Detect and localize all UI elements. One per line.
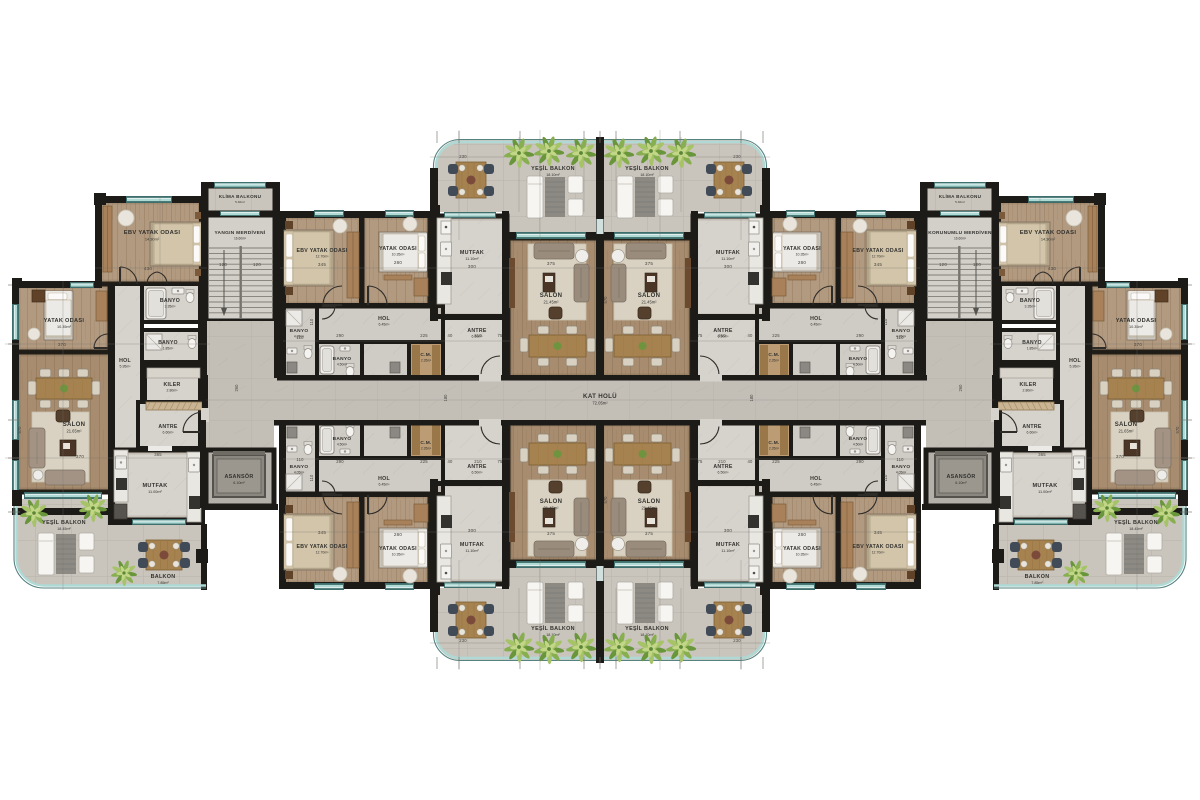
svg-text:YANGIN MERDİVENİ: YANGIN MERDİVENİ <box>215 229 266 236</box>
svg-text:570: 570 <box>1175 426 1180 434</box>
svg-text:21.65m²: 21.65m² <box>1118 429 1134 434</box>
svg-text:16.60m²: 16.60m² <box>954 236 967 240</box>
svg-text:BANYO: BANYO <box>1022 340 1042 346</box>
svg-text:BANYO: BANYO <box>1020 298 1040 304</box>
svg-text:14.30m²: 14.30m² <box>145 236 160 241</box>
svg-text:6.60m²: 6.60m² <box>1027 431 1039 435</box>
svg-text:180: 180 <box>749 394 754 402</box>
svg-text:MUTFAK: MUTFAK <box>716 250 740 256</box>
svg-text:110: 110 <box>309 474 314 481</box>
svg-text:C.M.: C.M. <box>420 440 431 446</box>
svg-text:EBV YATAK ODASI: EBV YATAK ODASI <box>1020 230 1077 236</box>
svg-text:YATAK ODASI: YATAK ODASI <box>1116 318 1157 324</box>
svg-text:110: 110 <box>896 457 904 462</box>
svg-text:2.35m²: 2.35m² <box>421 446 432 450</box>
svg-text:280: 280 <box>394 260 403 265</box>
svg-text:570: 570 <box>603 496 608 504</box>
svg-text:ANTRE: ANTRE <box>158 424 178 430</box>
svg-text:YATAK ODASI: YATAK ODASI <box>783 246 821 252</box>
svg-text:10.35m²: 10.35m² <box>796 553 810 557</box>
svg-text:7.85m²: 7.85m² <box>157 581 169 585</box>
svg-text:10.35m²: 10.35m² <box>796 253 810 257</box>
svg-text:120: 120 <box>939 262 947 267</box>
svg-text:BANYO: BANYO <box>333 356 352 362</box>
svg-text:KLİMA BALKONU: KLİMA BALKONU <box>939 193 982 199</box>
svg-text:225: 225 <box>420 459 428 464</box>
svg-text:4.50m²: 4.50m² <box>853 442 864 446</box>
svg-text:3.35m²: 3.35m² <box>1025 305 1037 309</box>
svg-text:21.45m²: 21.45m² <box>543 300 559 305</box>
svg-text:290: 290 <box>856 459 864 464</box>
svg-text:7.85m²: 7.85m² <box>1031 581 1043 585</box>
svg-text:210: 210 <box>474 333 482 338</box>
svg-text:21.65m²: 21.65m² <box>66 429 82 434</box>
svg-text:18.45m²: 18.45m² <box>1129 527 1143 531</box>
svg-text:18.10m²: 18.10m² <box>546 173 560 177</box>
svg-text:110: 110 <box>309 318 314 325</box>
svg-text:YATAK ODASI: YATAK ODASI <box>379 546 417 552</box>
svg-text:365: 365 <box>154 452 162 457</box>
svg-text:BANYO: BANYO <box>849 356 868 362</box>
svg-text:110: 110 <box>883 474 888 481</box>
svg-text:290: 290 <box>856 333 864 338</box>
svg-text:2.80m²: 2.80m² <box>167 389 179 393</box>
svg-text:4.05m²: 4.05m² <box>294 470 305 474</box>
svg-text:570: 570 <box>17 426 22 434</box>
svg-text:375: 375 <box>547 261 556 266</box>
svg-text:280: 280 <box>394 532 403 537</box>
svg-text:225: 225 <box>420 333 428 338</box>
svg-text:2.35m²: 2.35m² <box>421 358 432 362</box>
svg-text:40: 40 <box>447 333 453 338</box>
svg-text:YATAK ODASI: YATAK ODASI <box>379 246 417 252</box>
svg-text:SALON: SALON <box>638 293 661 299</box>
svg-text:4.05m²: 4.05m² <box>896 470 907 474</box>
svg-text:HOL: HOL <box>378 476 390 482</box>
svg-text:21.45m²: 21.45m² <box>641 300 657 305</box>
svg-text:KAT HOLÜ: KAT HOLÜ <box>583 393 617 400</box>
svg-text:EBV YATAK ODASI: EBV YATAK ODASI <box>296 544 347 550</box>
svg-text:5.40m²: 5.40m² <box>955 200 965 204</box>
svg-text:75: 75 <box>697 333 703 338</box>
svg-text:345: 345 <box>874 262 883 267</box>
svg-text:YEŞİL BALKON: YEŞİL BALKON <box>42 519 86 526</box>
svg-text:225: 225 <box>772 459 780 464</box>
svg-text:MUTFAK: MUTFAK <box>1032 483 1057 489</box>
svg-text:110: 110 <box>296 457 304 462</box>
svg-text:HOL: HOL <box>810 316 822 322</box>
svg-text:12.70m²: 12.70m² <box>316 255 330 259</box>
svg-text:210: 210 <box>718 333 726 338</box>
svg-text:14.30m²: 14.30m² <box>1041 236 1056 241</box>
svg-text:BANYO: BANYO <box>892 464 911 470</box>
svg-text:SALON: SALON <box>540 499 563 505</box>
svg-text:260: 260 <box>958 384 963 392</box>
svg-text:6.45m²: 6.45m² <box>379 323 391 327</box>
svg-text:210: 210 <box>474 459 482 464</box>
svg-text:EBV YATAK ODASI: EBV YATAK ODASI <box>852 248 903 254</box>
svg-text:ANTRE: ANTRE <box>1022 424 1042 430</box>
svg-text:KORUNUMLU MERDİVEN: KORUNUMLU MERDİVEN <box>928 229 992 236</box>
svg-text:345: 345 <box>318 530 327 535</box>
svg-text:12.70m²: 12.70m² <box>872 255 886 259</box>
svg-text:21.45m²: 21.45m² <box>543 506 559 511</box>
svg-text:430: 430 <box>144 266 153 271</box>
svg-text:6.45m²: 6.45m² <box>379 483 391 487</box>
svg-text:21.45m²: 21.45m² <box>641 506 657 511</box>
svg-text:570: 570 <box>603 296 608 304</box>
svg-text:10.35m²: 10.35m² <box>57 325 72 329</box>
svg-text:10.35m²: 10.35m² <box>1129 325 1144 329</box>
svg-text:SALON: SALON <box>63 422 86 428</box>
svg-text:5.40m²: 5.40m² <box>235 200 245 204</box>
svg-text:260: 260 <box>234 384 239 392</box>
svg-text:YEŞİL BALKON: YEŞİL BALKON <box>625 165 669 172</box>
svg-text:345: 345 <box>318 262 327 267</box>
svg-text:6.50m²: 6.50m² <box>472 471 484 475</box>
svg-text:YATAK ODASI: YATAK ODASI <box>44 318 85 324</box>
svg-text:370: 370 <box>1134 342 1143 347</box>
svg-text:C.M.: C.M. <box>768 352 779 358</box>
svg-text:4.50m²: 4.50m² <box>337 442 348 446</box>
svg-text:MUTFAK: MUTFAK <box>716 542 740 548</box>
svg-text:BALKON: BALKON <box>1025 574 1050 580</box>
svg-text:11.00m²: 11.00m² <box>148 490 162 494</box>
svg-text:180: 180 <box>443 394 448 402</box>
svg-text:MUTFAK: MUTFAK <box>142 483 167 489</box>
svg-text:ANTRE: ANTRE <box>713 464 733 470</box>
svg-text:230: 230 <box>459 638 467 643</box>
svg-text:225: 225 <box>772 333 780 338</box>
svg-text:16.60m²: 16.60m² <box>234 236 247 240</box>
svg-text:345: 345 <box>874 530 883 535</box>
svg-text:6.45m²: 6.45m² <box>811 323 823 327</box>
svg-text:40: 40 <box>747 459 753 464</box>
svg-text:SALON: SALON <box>638 499 661 505</box>
svg-text:11.10m²: 11.10m² <box>721 549 735 553</box>
svg-text:YEŞİL BALKON: YEŞİL BALKON <box>625 625 669 632</box>
svg-text:BANYO: BANYO <box>290 464 309 470</box>
svg-text:ASANSÖR: ASANSÖR <box>224 473 253 480</box>
svg-text:18.45m²: 18.45m² <box>57 527 71 531</box>
svg-text:110: 110 <box>883 318 888 325</box>
svg-text:10.35m²: 10.35m² <box>392 553 406 557</box>
svg-text:230: 230 <box>733 638 741 643</box>
svg-text:210: 210 <box>718 459 726 464</box>
svg-text:EBV YATAK ODASI: EBV YATAK ODASI <box>296 248 347 254</box>
svg-text:370: 370 <box>58 342 67 347</box>
svg-text:HOL: HOL <box>810 476 822 482</box>
svg-text:11.10m²: 11.10m² <box>465 257 479 261</box>
svg-text:3.35m²: 3.35m² <box>165 305 177 309</box>
svg-text:EBV YATAK ODASI: EBV YATAK ODASI <box>124 230 181 236</box>
svg-text:290: 290 <box>336 459 344 464</box>
svg-text:SALON: SALON <box>540 293 563 299</box>
svg-text:4.50m²: 4.50m² <box>337 362 348 366</box>
svg-text:12.70m²: 12.70m² <box>872 551 886 555</box>
svg-text:1.85m²: 1.85m² <box>163 347 174 351</box>
svg-text:12.70m²: 12.70m² <box>316 551 330 555</box>
svg-text:ASANSÖR: ASANSÖR <box>946 473 975 480</box>
svg-text:290: 290 <box>336 333 344 338</box>
svg-text:BANYO: BANYO <box>892 328 911 334</box>
svg-text:6.45m²: 6.45m² <box>811 483 823 487</box>
svg-text:EBV YATAK ODASI: EBV YATAK ODASI <box>852 544 903 550</box>
svg-text:SALON: SALON <box>1115 422 1138 428</box>
svg-text:230: 230 <box>733 154 741 159</box>
svg-text:BANYO: BANYO <box>333 436 352 442</box>
svg-text:2.35m²: 2.35m² <box>769 358 780 362</box>
svg-text:75: 75 <box>697 459 703 464</box>
svg-text:120: 120 <box>253 262 261 267</box>
svg-text:18.10m²: 18.10m² <box>640 173 654 177</box>
svg-text:280: 280 <box>798 532 807 537</box>
svg-text:2.80m²: 2.80m² <box>1023 389 1035 393</box>
svg-text:120: 120 <box>219 262 227 267</box>
svg-text:HOL: HOL <box>119 358 131 364</box>
svg-text:HOL: HOL <box>1069 358 1081 364</box>
svg-text:1.85m²: 1.85m² <box>1027 347 1038 351</box>
svg-text:5.95m²: 5.95m² <box>1070 365 1082 369</box>
svg-text:430: 430 <box>1048 266 1057 271</box>
svg-text:72.05m²: 72.05m² <box>592 401 608 406</box>
svg-text:11.10m²: 11.10m² <box>465 549 479 553</box>
svg-text:120: 120 <box>973 262 981 267</box>
svg-text:KILER: KILER <box>1019 382 1036 388</box>
svg-text:KILER: KILER <box>163 382 180 388</box>
svg-text:6.10m²: 6.10m² <box>955 481 967 485</box>
svg-text:C.M.: C.M. <box>768 440 779 446</box>
svg-text:YEŞİL BALKON: YEŞİL BALKON <box>531 625 575 632</box>
svg-text:YEŞİL BALKON: YEŞİL BALKON <box>1114 519 1158 526</box>
svg-text:4.50m²: 4.50m² <box>853 362 864 366</box>
svg-text:MUTFAK: MUTFAK <box>460 250 484 256</box>
svg-text:11.00m²: 11.00m² <box>1038 490 1052 494</box>
svg-text:BANYO: BANYO <box>160 298 180 304</box>
svg-text:75: 75 <box>497 459 503 464</box>
svg-text:230: 230 <box>459 154 467 159</box>
svg-text:6.60m²: 6.60m² <box>163 431 175 435</box>
svg-text:YATAK ODASI: YATAK ODASI <box>783 546 821 552</box>
svg-text:HOL: HOL <box>378 316 390 322</box>
svg-text:BANYO: BANYO <box>290 328 309 334</box>
svg-text:BANYO: BANYO <box>158 340 178 346</box>
svg-text:280: 280 <box>798 260 807 265</box>
svg-text:365: 365 <box>1038 452 1046 457</box>
svg-text:KLİMA BALKONU: KLİMA BALKONU <box>219 193 262 199</box>
svg-text:40: 40 <box>747 333 753 338</box>
svg-text:BALKON: BALKON <box>151 574 176 580</box>
svg-text:BANYO: BANYO <box>849 436 868 442</box>
svg-text:10.35m²: 10.35m² <box>392 253 406 257</box>
svg-text:110: 110 <box>896 335 904 340</box>
svg-text:6.10m²: 6.10m² <box>233 481 245 485</box>
svg-text:ANTRE: ANTRE <box>467 464 487 470</box>
svg-text:MUTFAK: MUTFAK <box>460 542 484 548</box>
svg-text:375: 375 <box>645 261 654 266</box>
svg-text:6.50m²: 6.50m² <box>718 471 730 475</box>
svg-text:75: 75 <box>497 333 503 338</box>
svg-text:2.35m²: 2.35m² <box>769 446 780 450</box>
svg-text:110: 110 <box>296 335 304 340</box>
svg-text:YEŞİL BALKON: YEŞİL BALKON <box>531 165 575 172</box>
svg-text:11.10m²: 11.10m² <box>721 257 735 261</box>
svg-text:40: 40 <box>447 459 453 464</box>
svg-text:C.M.: C.M. <box>420 352 431 358</box>
svg-text:5.95m²: 5.95m² <box>120 365 132 369</box>
